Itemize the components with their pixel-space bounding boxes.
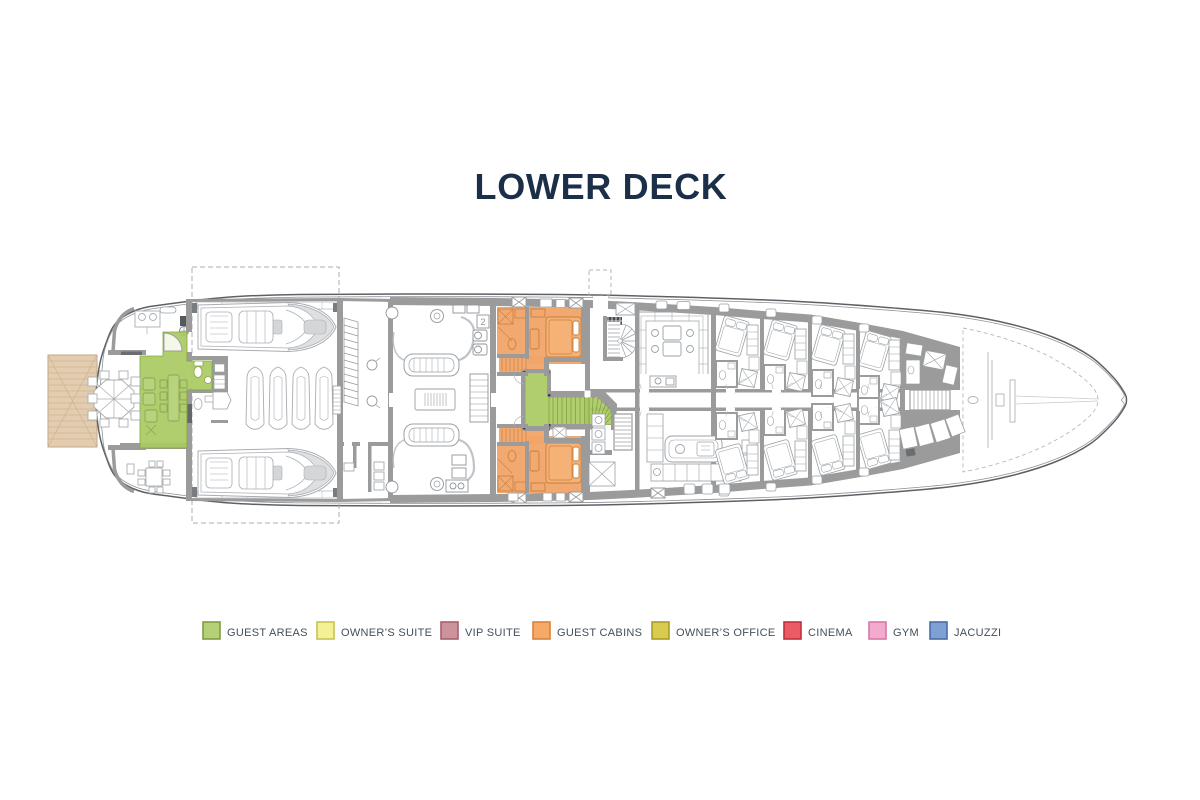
svg-text:GUEST CABINS: GUEST CABINS — [557, 627, 642, 639]
svg-text:GYM: GYM — [893, 627, 919, 639]
svg-text:CINEMA: CINEMA — [808, 627, 853, 639]
svg-text:OWNER’S SUITE: OWNER’S SUITE — [341, 627, 432, 639]
svg-text:LOWER DECK: LOWER DECK — [475, 166, 728, 207]
svg-text:GUEST AREAS: GUEST AREAS — [227, 627, 308, 639]
svg-text:JACUZZI: JACUZZI — [954, 627, 1001, 639]
svg-text:OWNER’S OFFICE: OWNER’S OFFICE — [676, 627, 776, 639]
svg-text:VIP SUITE: VIP SUITE — [465, 627, 521, 639]
svg-text:2: 2 — [480, 317, 485, 327]
